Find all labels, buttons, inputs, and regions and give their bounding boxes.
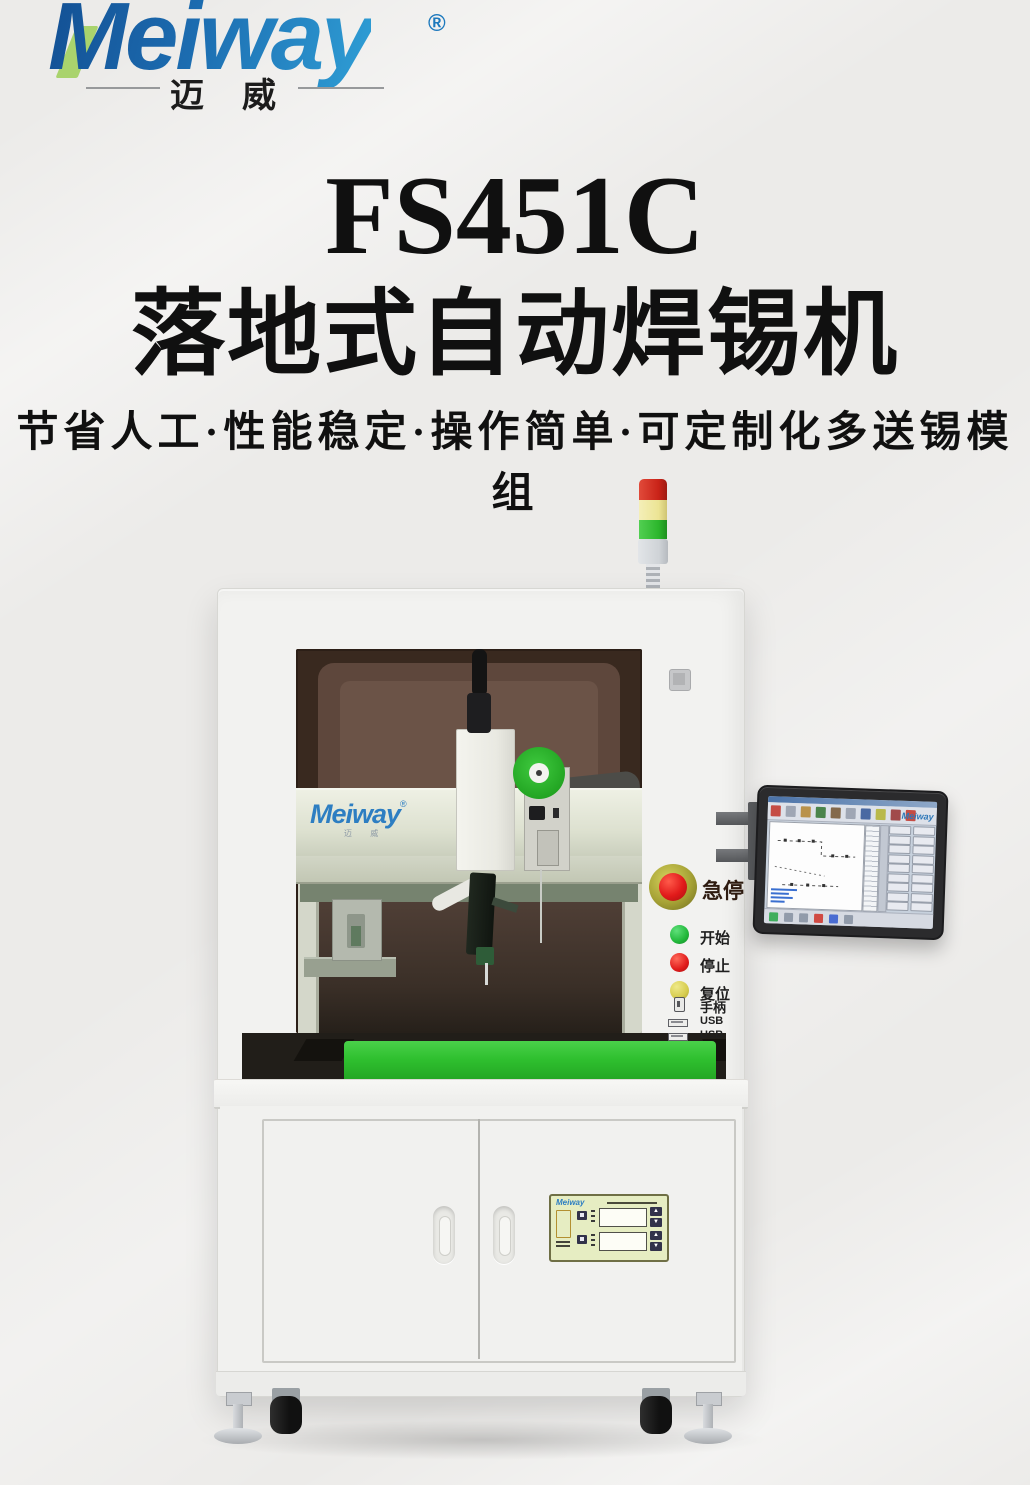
cabinet-door-handle-left xyxy=(433,1206,455,1264)
start-label: 开始 xyxy=(700,927,730,948)
z-axis-cable xyxy=(472,649,487,697)
feeder-display-1 xyxy=(599,1208,647,1227)
screen-bottombar-icons xyxy=(764,909,933,929)
usb-port-tongue xyxy=(671,1021,683,1023)
screen-button-grid xyxy=(886,825,935,912)
caster-wheel xyxy=(640,1396,672,1434)
screen-bottombar-icon xyxy=(784,913,793,922)
feeder-down-button-2: ▼ xyxy=(650,1242,662,1251)
control-column: 急停 开始 停止 复位 手柄 USB USB xyxy=(642,589,744,1081)
screen-toolbar-icon xyxy=(801,806,811,817)
tower-light-tube xyxy=(646,564,660,591)
caster-right xyxy=(638,1388,674,1436)
usb-port-icon xyxy=(668,1019,688,1027)
feeder-up-button-2: ▲ xyxy=(650,1231,662,1240)
feeder-screw xyxy=(553,808,559,818)
screen-grid-button xyxy=(911,883,933,893)
soldering-head-body xyxy=(466,872,496,955)
brand-logo-divider-left xyxy=(86,87,160,89)
monitor: Meiway xyxy=(752,785,948,941)
tip-cleaner-block xyxy=(332,899,382,961)
lower-cabinet: Meiway ▲ ▼ ▲ ▼ xyxy=(220,1106,742,1371)
screen-grid-button xyxy=(912,855,934,865)
foot-base xyxy=(214,1428,262,1444)
screen-grid-button xyxy=(912,864,934,874)
foot-stem xyxy=(233,1404,243,1430)
caster-wheel xyxy=(270,1396,302,1434)
feeder-panel-badge xyxy=(556,1210,571,1238)
feeder-guide xyxy=(537,830,559,866)
hero-product-name: 落地式自动焊锡机 xyxy=(0,258,1030,394)
feeder-mode-button xyxy=(577,1235,587,1244)
handle-groove xyxy=(439,1216,451,1256)
screen-toolbar-icon xyxy=(771,805,781,816)
screen-toolbar-icon xyxy=(861,808,871,819)
tower-light-yellow xyxy=(639,500,667,520)
screen-grid-button xyxy=(888,863,910,873)
usb1-label: USB xyxy=(700,1015,723,1027)
gantry-logo-sub: 迈 威 xyxy=(344,828,440,839)
gantry-logo-reg: ® xyxy=(400,799,407,809)
handle-groove xyxy=(499,1216,511,1256)
screen-grid-button xyxy=(887,882,909,892)
screen-bottombar-icon xyxy=(814,914,823,923)
soldering-head-tip xyxy=(485,963,488,985)
leveling-foot-right xyxy=(684,1392,732,1448)
machine: Meiway® 迈 威 xyxy=(217,588,745,1397)
stop-button xyxy=(670,953,689,972)
feeder-mode-glyph xyxy=(580,1237,584,1241)
screen-bottombar-icon xyxy=(769,912,778,921)
brand-logo-reg-mark: ® xyxy=(428,10,446,38)
screen-bottombar xyxy=(764,908,933,929)
feeder-display-2 xyxy=(599,1232,647,1251)
screen-grid-button xyxy=(910,902,932,912)
tower-light-base xyxy=(638,539,668,564)
handle-port-icon xyxy=(674,997,685,1012)
foot-stem xyxy=(703,1404,713,1430)
screen-grid-button xyxy=(911,893,933,903)
brand-logo-divider-right xyxy=(298,87,384,89)
screen-toolbar-icon xyxy=(890,809,900,820)
feeder-motor xyxy=(529,806,545,820)
solder-spool-axle xyxy=(536,770,542,776)
screen-grid-button xyxy=(913,826,935,836)
estop-button xyxy=(659,873,687,901)
z-axis-module xyxy=(456,729,515,871)
stop-label: 停止 xyxy=(700,955,730,976)
poster: Meiway ® 迈威 FS451C 落地式自动焊锡机 节省人工·性能稳定·操作… xyxy=(0,0,1030,1485)
screen-path-canvas xyxy=(766,821,865,911)
cabinet-door-divider xyxy=(478,1119,480,1359)
start-button xyxy=(670,925,689,944)
hero-tagline: 节省人工·性能稳定·操作简单·可定制化多送锡模组 xyxy=(0,398,1030,520)
caster-left xyxy=(268,1388,304,1436)
feeder-up-button-1: ▲ xyxy=(650,1207,662,1216)
handle-label: 手柄 xyxy=(700,997,726,1016)
usb-port-tongue xyxy=(671,1035,683,1037)
feeder-panel-footnote xyxy=(556,1245,570,1247)
feeder-down-button-1: ▼ xyxy=(650,1218,662,1227)
brand-logo-chinese: 迈威 xyxy=(170,68,314,117)
panel-square-button xyxy=(669,669,691,691)
tip-cleaner-insert xyxy=(351,926,361,946)
screen-grid-button xyxy=(889,825,911,835)
gantry-logo: Meiway® 迈 威 xyxy=(310,799,440,843)
handle-port-pin xyxy=(677,1001,680,1007)
tower-light xyxy=(636,479,672,591)
feeder-controller-panel: Meiway ▲ ▼ ▲ ▼ xyxy=(549,1194,669,1262)
screen-bottombar-icon xyxy=(799,913,808,922)
monitor-screen: Meiway xyxy=(764,796,937,929)
screen-toolbar-icon xyxy=(831,807,841,818)
canvas-status-lines xyxy=(770,888,801,905)
brand-logo: Meiway ® 迈威 xyxy=(30,0,500,115)
usb2-label: USB xyxy=(700,1029,723,1041)
screen-grid-button xyxy=(886,901,908,911)
z-axis-cable-connector xyxy=(467,693,491,733)
cabinet-door-handle-right xyxy=(493,1206,515,1264)
foot-base xyxy=(684,1428,732,1444)
feeder-row-leds xyxy=(591,1210,595,1224)
tower-light-red xyxy=(639,479,667,500)
screen-toolbar-icon xyxy=(846,808,856,819)
screen-grid-button xyxy=(888,854,910,864)
feeder-mode-button xyxy=(577,1211,587,1220)
feeder-panel-title-text xyxy=(607,1202,657,1204)
screen-brand-logo: Meiway xyxy=(901,811,933,822)
tabletop-band xyxy=(214,1079,748,1109)
screen-toolbar-icon xyxy=(876,809,886,820)
feeder-row-leds xyxy=(591,1234,595,1248)
tower-light-green xyxy=(639,520,667,539)
screen-grid-button xyxy=(888,844,910,854)
screen-grid-button xyxy=(887,873,909,883)
screen-grid-button xyxy=(911,874,933,884)
usb-port-icon xyxy=(668,1033,688,1041)
screen-grid-button xyxy=(887,892,909,902)
feeder-panel-footnote xyxy=(556,1241,570,1243)
screen-grid-button xyxy=(913,836,935,846)
screen-toolbar-icon xyxy=(786,806,796,817)
screen-grid-button xyxy=(912,845,934,855)
feeder-panel-logo: Meiway xyxy=(556,1198,584,1207)
solder-spool xyxy=(513,747,565,799)
gantry-logo-text: Meiway xyxy=(310,799,400,829)
screen-bottombar-icon xyxy=(844,915,853,924)
leveling-foot-left xyxy=(214,1392,262,1448)
screen-toolbar-icon xyxy=(816,807,826,818)
machine-window: Meiway® 迈 威 xyxy=(296,649,642,1033)
panel-square-button-inner xyxy=(673,673,685,685)
solder-wire xyxy=(540,869,542,943)
feeder-mode-glyph xyxy=(580,1213,584,1217)
screen-grid-button xyxy=(889,835,911,845)
screen-bottombar-icon xyxy=(829,914,838,923)
estop-label: 急停 xyxy=(702,875,744,905)
